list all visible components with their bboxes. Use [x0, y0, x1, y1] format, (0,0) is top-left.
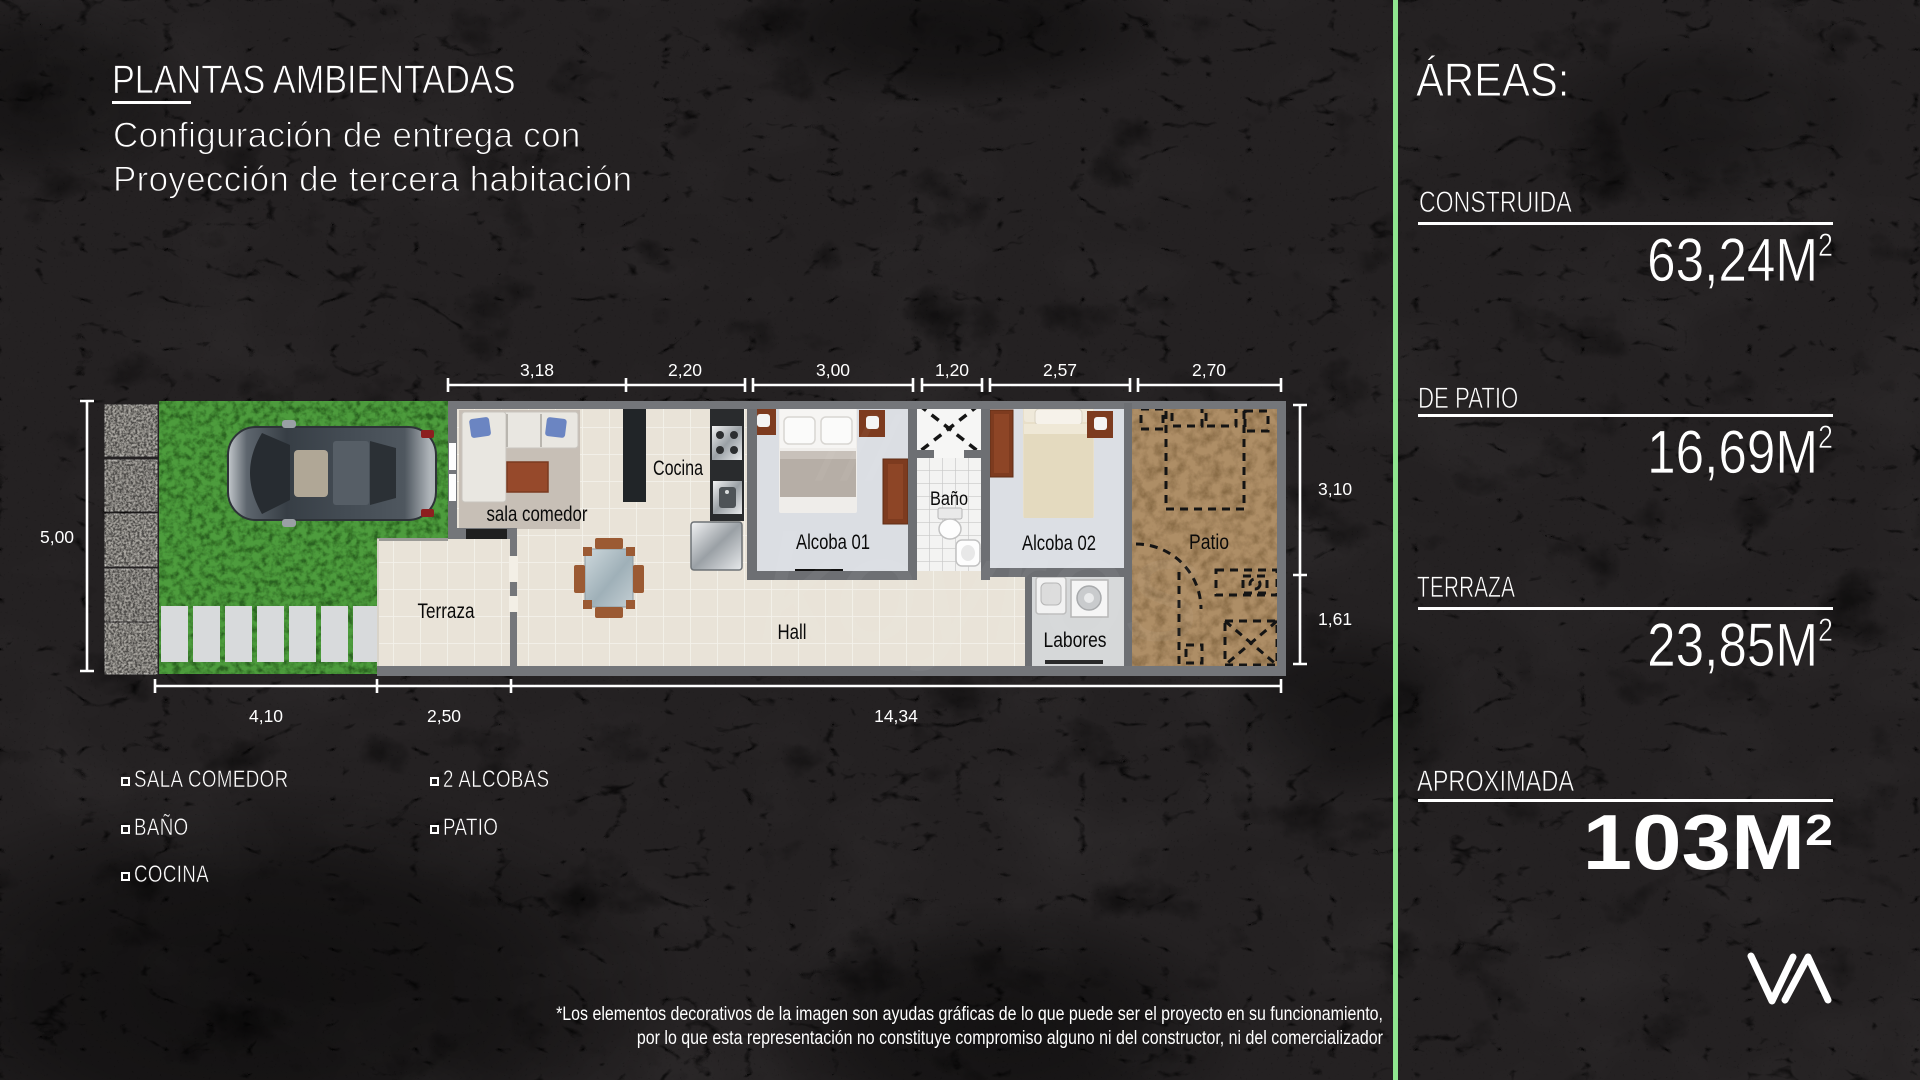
svg-text:2,57: 2,57	[1043, 360, 1077, 380]
svg-text:5,00: 5,00	[40, 527, 74, 547]
svg-text:Alcoba 01: Alcoba 01	[796, 531, 870, 554]
svg-text:2,20: 2,20	[668, 360, 702, 380]
svg-text:1,20: 1,20	[935, 360, 969, 380]
svg-text:Cocina: Cocina	[653, 457, 703, 480]
svg-text:2,50: 2,50	[427, 706, 461, 726]
svg-text:3,00: 3,00	[816, 360, 850, 380]
svg-text:Hall: Hall	[778, 621, 807, 644]
svg-text:sala comedor: sala comedor	[487, 503, 588, 526]
svg-text:koyros: koyros	[760, 504, 1202, 672]
svg-text:Alcoba 02: Alcoba 02	[1022, 532, 1096, 555]
svg-text:Terraza: Terraza	[418, 600, 475, 623]
svg-text:///: ///	[814, 400, 903, 500]
svg-text:Labores: Labores	[1044, 629, 1107, 652]
svg-text:1,61: 1,61	[1318, 609, 1352, 629]
svg-text:Patio: Patio	[1189, 531, 1229, 554]
svg-text:3,18: 3,18	[520, 360, 554, 380]
svg-text:2,70: 2,70	[1192, 360, 1226, 380]
svg-text:4,10: 4,10	[249, 706, 283, 726]
svg-text:Baño: Baño	[930, 489, 968, 510]
svg-text:14,34: 14,34	[874, 706, 918, 726]
svg-text:3,10: 3,10	[1318, 479, 1352, 499]
